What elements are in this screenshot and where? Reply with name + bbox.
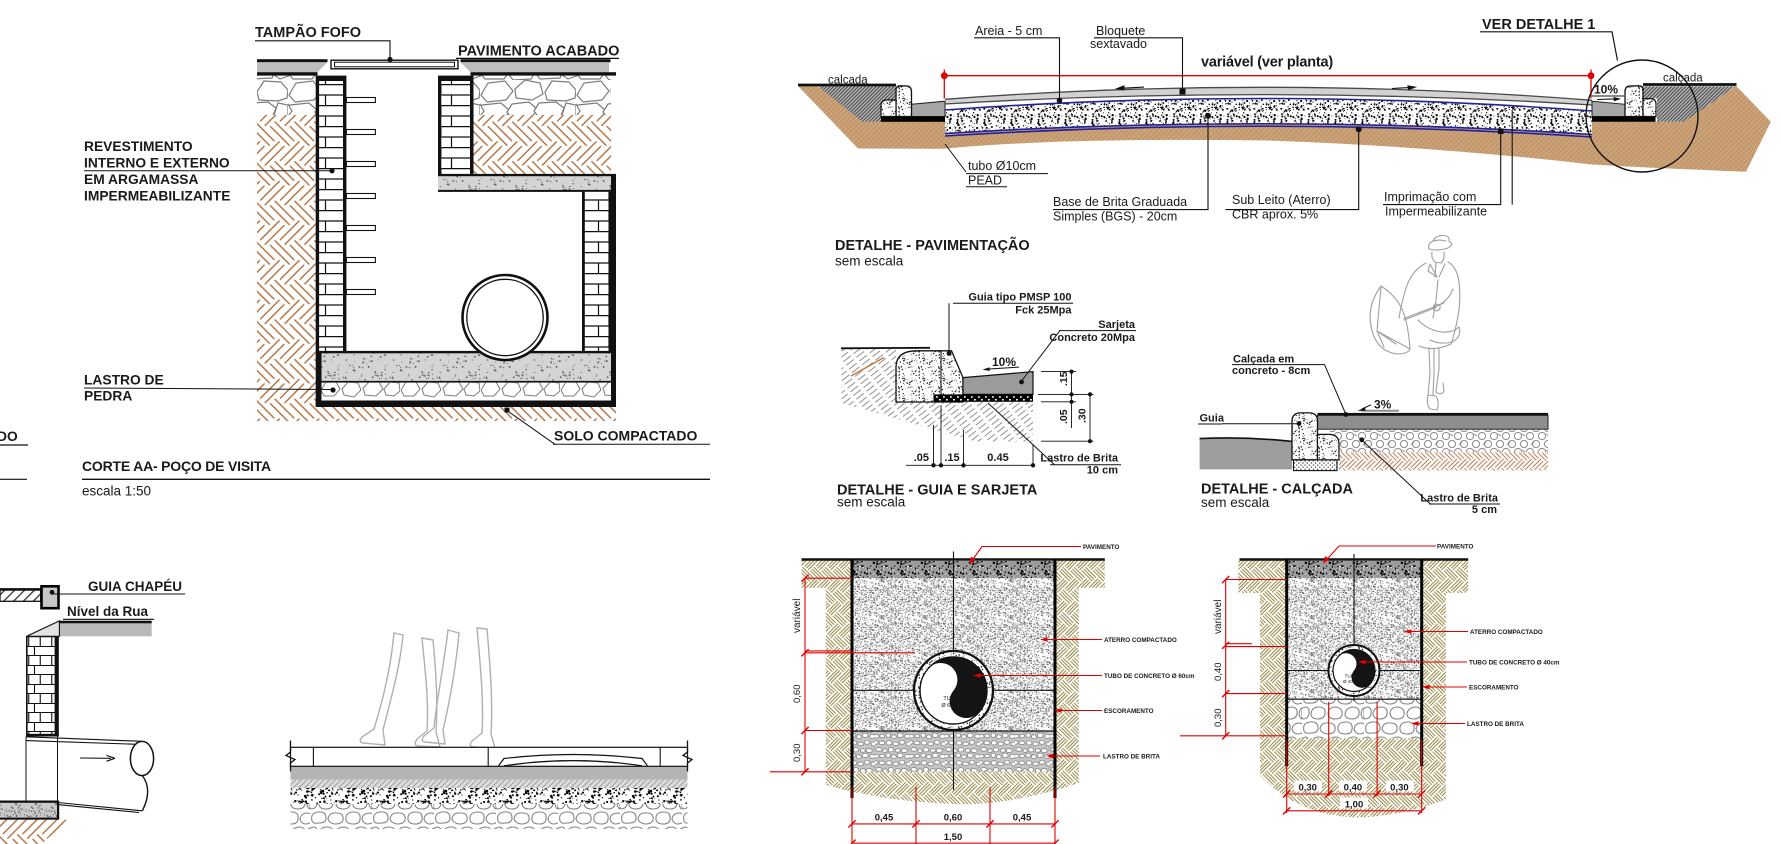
svg-text:LASTRO DE: LASTRO DE [84,373,164,388]
svg-text:0,60: 0,60 [792,685,803,704]
svg-text:.05: .05 [1058,409,1070,424]
svg-text:ATERRO COMPACTADO: ATERRO COMPACTADO [1470,629,1543,636]
svg-text:0,45: 0,45 [1013,813,1032,824]
svg-text:TUBO: TUBO [943,696,959,702]
svg-text:PEDRA: PEDRA [84,389,132,404]
svg-text:Concreto 20Mpa: Concreto 20Mpa [1049,332,1135,344]
svg-text:0,60: 0,60 [944,813,963,824]
svg-text:Nível da Rua: Nível da Rua [67,604,149,619]
svg-text:LASTRO DE BRITA: LASTRO DE BRITA [1467,721,1524,728]
svg-text:tubo Ø10cm: tubo Ø10cm [968,159,1036,173]
svg-text:PAVIMENTO: PAVIMENTO [1437,544,1473,551]
svg-text:0,30: 0,30 [792,744,803,763]
svg-text:escala 1:50: escala 1:50 [82,484,151,499]
svg-text:sem escala: sem escala [1201,495,1270,510]
svg-text:.05: .05 [914,452,929,464]
svg-text:TAMPÃO FOFO: TAMPÃO FOFO [255,23,361,41]
svg-text:Guia: Guia [1200,413,1225,425]
svg-text:ESCORAMENTO: ESCORAMENTO [1469,685,1519,692]
svg-text:0,30: 0,30 [1390,783,1409,794]
svg-text:10%: 10% [992,355,1016,369]
svg-text:SOLO COMPACTADO: SOLO COMPACTADO [554,428,697,444]
svg-text:Areia - 5 cm: Areia - 5 cm [975,24,1042,38]
svg-text:concreto - 8cm: concreto - 8cm [1232,365,1310,377]
svg-text:PAVIMENTO: PAVIMENTO [1083,544,1119,551]
svg-text:TUBO DE CONCRETO Ø 40cm: TUBO DE CONCRETO Ø 40cm [1469,660,1560,667]
svg-text:PAVIMENTO ACABADO: PAVIMENTO ACABADO [458,44,619,60]
svg-text:.15: .15 [1058,371,1070,386]
svg-text:TUBO DE CONCRETO Ø 60cm: TUBO DE CONCRETO Ø 60cm [1104,673,1195,680]
svg-text:variável (ver planta): variável (ver planta) [1201,55,1333,71]
svg-text:IMPERMEABILIZANTE: IMPERMEABILIZANTE [84,189,230,204]
svg-text:Sub Leito (Aterro): Sub Leito (Aterro) [1232,193,1331,207]
svg-text:1,00: 1,00 [1345,800,1364,811]
svg-text:sem escala: sem escala [835,254,904,269]
svg-text:INTERNO E EXTERNO: INTERNO E EXTERNO [84,156,230,171]
svg-text:LASTRO DE BRITA: LASTRO DE BRITA [1103,754,1160,761]
svg-text:variável: variável [1213,600,1224,634]
svg-text:ESCORAMENTO: ESCORAMENTO [1104,708,1154,715]
svg-text:Calçada em: Calçada em [1233,354,1294,366]
svg-text:10 cm: 10 cm [1087,465,1118,477]
svg-text:0,40: 0,40 [1344,783,1363,794]
svg-text:0,30: 0,30 [1298,783,1317,794]
svg-text:0,45: 0,45 [875,813,894,824]
svg-text:0,30: 0,30 [1213,709,1224,728]
svg-text:sextavado: sextavado [1090,37,1147,51]
svg-text:.30: .30 [1077,408,1089,423]
svg-text:Lastro de Brita: Lastro de Brita [1420,493,1499,505]
svg-text:variável: variável [792,599,803,633]
svg-text:Base de Brita Graduada: Base de Brita Graduada [1053,195,1187,209]
svg-text:Ø 40cm: Ø 40cm [1343,679,1359,684]
svg-text:DO: DO [0,429,18,444]
svg-text:ATERRO COMPACTADO: ATERRO COMPACTADO [1104,637,1177,644]
svg-text:5 cm: 5 cm [1472,504,1497,516]
svg-text:GUIA CHAPÉU: GUIA CHAPÉU [88,579,182,594]
svg-text:.15: .15 [944,452,959,464]
svg-text:0,40: 0,40 [1213,663,1224,682]
svg-text:calçada: calçada [828,75,868,87]
svg-text:DETALHE - PAVIMENTAÇÃO: DETALHE - PAVIMENTAÇÃO [835,236,1030,254]
svg-text:Ø 60cm: Ø 60cm [941,703,961,709]
svg-text:EM ARGAMASSA: EM ARGAMASSA [84,172,199,187]
svg-text:Fck 25Mpa: Fck 25Mpa [1015,305,1072,317]
svg-text:Guia tipo PMSP 100: Guia tipo PMSP 100 [968,292,1071,304]
svg-text:Simples (BGS) - 20cm: Simples (BGS) - 20cm [1053,210,1177,224]
svg-text:10%: 10% [1594,83,1618,97]
svg-text:3%: 3% [1374,398,1392,412]
svg-text:1,50: 1,50 [944,832,963,843]
svg-text:REVESTIMENTO: REVESTIMENTO [84,139,193,154]
svg-text:Imprimação com: Imprimação com [1384,190,1476,204]
svg-text:VER DETALHE 1: VER DETALHE 1 [1482,17,1595,33]
svg-text:Impermeabilizante: Impermeabilizante [1385,205,1487,219]
svg-text:TUBO: TUBO [1345,674,1358,679]
svg-text:Sarjeta: Sarjeta [1098,319,1136,331]
svg-text:0.45: 0.45 [987,452,1008,464]
svg-text:PEAD: PEAD [968,174,1002,188]
svg-text:sem escala: sem escala [837,495,906,510]
svg-text:Bloquete: Bloquete [1096,24,1145,38]
svg-text:CORTE AA- POÇO DE VISITA: CORTE AA- POÇO DE VISITA [82,458,271,474]
